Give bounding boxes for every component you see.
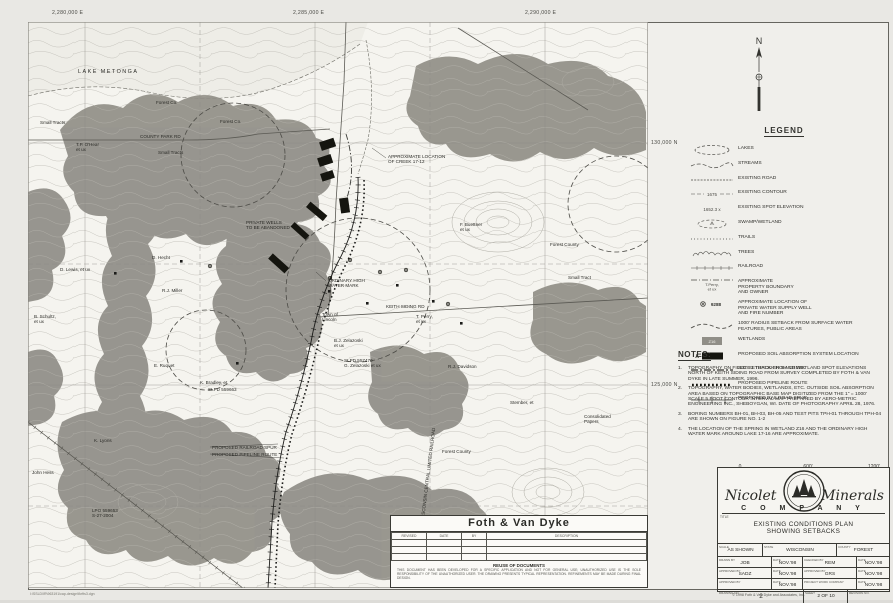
note-number: 1.: [678, 366, 688, 382]
rev-cell: [462, 540, 487, 547]
brand-name-right: Minerals: [821, 488, 884, 504]
trees-symbol: [686, 248, 738, 260]
legend-item-label: LAKES: [738, 144, 754, 151]
notes: NOTES: 1.TOPOGRAPHY ON FIELDS 1 THROUGH …: [678, 344, 884, 441]
legend-item-label: 1000' RADIUS SETBACK FROM SURFACE WATER …: [738, 319, 853, 332]
map-graphics: [28, 22, 648, 588]
legend-item: 1675EXISTING CONTOUR: [686, 188, 882, 200]
rev-cell: [427, 547, 462, 554]
company-title-block: Nicolet Minerals C O M P A N Y TITLE EXI…: [717, 467, 890, 592]
legend-item: TRAILS: [686, 233, 882, 245]
foth-van-dyke-block: Foth & Van Dyke REVISED DATE BY DESCRIPT…: [390, 515, 648, 588]
legend-item-label: EXISTING CONTOUR: [738, 188, 787, 195]
tb-label: APPROVED BY: [719, 569, 741, 573]
legend-item: SWAMP/WETLAND: [686, 218, 882, 230]
existing-contour-symbol: 1675: [686, 188, 738, 200]
rev-cell: [462, 554, 487, 561]
north-arrow-icon: N: [748, 34, 770, 114]
drawing-sheet: 2,280,000 E 2,285,000 E 2,290,000 E 130,…: [0, 0, 893, 600]
legend-item: STREAMS: [686, 159, 882, 171]
topographic-map: LAKE METONGAForest Co.Forest Co.Small Tr…: [28, 22, 648, 588]
rev-header: BY: [462, 533, 487, 540]
tb-label: COUNTY: [838, 545, 851, 549]
legend-item: RAILROAD: [686, 262, 882, 274]
legend-item-label: TRAILS: [738, 233, 755, 240]
legend-item-label: SWAMP/WETLAND: [738, 218, 782, 225]
coord-label-east-1: 2,280,000 E: [52, 10, 83, 16]
rev-cell: [487, 540, 647, 547]
note-item: 4.THE LOCATION OF THE SPRING IN WETLAND …: [678, 427, 884, 438]
copyright-line: © 1998 Foth & Van Dyke and Associates, I…: [648, 593, 889, 597]
tb-value: WISCONSIN: [765, 548, 835, 553]
railroad-symbol: [686, 262, 738, 274]
note-text: THE LOCATION OF THE SPRING IN WETLAND Z1…: [688, 427, 884, 438]
legend-item-label: TREES: [738, 248, 754, 255]
notes-title: NOTES:: [678, 350, 711, 361]
note-text: TOPOGRAPHY ON FIELDS 1 THROUGH 5 AND WET…: [688, 366, 884, 382]
lakes-symbol: [686, 144, 738, 156]
note-number: 4.: [678, 427, 688, 438]
spot-elevation-symbol: 1652.3 x: [686, 203, 738, 215]
notes-items: 1.TOPOGRAPHY ON FIELDS 1 THROUGH 5 AND W…: [678, 366, 884, 437]
property-boundary-symbol: T.Perry,et ux: [686, 277, 738, 292]
title-tag: TITLE: [720, 515, 729, 519]
legend-item-label: STREAMS: [738, 159, 762, 166]
legend-title: LEGEND: [764, 126, 803, 137]
rev-cell: [392, 547, 427, 554]
revision-table: REVISED DATE BY DESCRIPTION: [391, 532, 647, 561]
legend-item: 9288APPROXIMATE LOCATION OF PRIVATE WATE…: [686, 298, 882, 316]
reuse-of-documents: REUSE OF DOCUMENTS THIS DOCUMENT HAS BEE…: [391, 561, 647, 580]
tb-label: DATE: [858, 569, 866, 573]
tb-row-approved1: APPROVED BYSADZ DATENOV.'98 APPROVED BYG…: [718, 568, 889, 579]
rev-header: REVISED: [392, 533, 427, 540]
north-label: N: [756, 36, 763, 46]
tb-label: DATE: [773, 580, 781, 584]
trails-symbol: [686, 233, 738, 245]
reuse-text: THIS DOCUMENT HAS BEEN DEVELOPED FOR A S…: [397, 569, 641, 580]
tb-label: CHECKED BY: [804, 558, 824, 562]
company-logo-row: Nicolet Minerals C O M P A N Y: [718, 468, 889, 514]
svg-text:et ux: et ux: [708, 287, 717, 292]
rev-cell: [427, 540, 462, 547]
tb-label: DATE: [773, 558, 781, 562]
company-word: C O M P A N Y: [722, 505, 885, 514]
tb-row-scale: SCALEAS SHOWN STATEWISCONSIN COUNTYFORES…: [718, 544, 889, 557]
rev-cell: [392, 540, 427, 547]
existing-road-symbol: [686, 174, 738, 186]
rev-cell: [427, 554, 462, 561]
legend-item: 1000' RADIUS SETBACK FROM SURFACE WATER …: [686, 319, 882, 332]
legend-item-label: EXISTING ROAD: [738, 174, 776, 181]
note-item: 3.BORING NUMBERS BH-01, BH-03, BH-05 AND…: [678, 412, 884, 423]
rev-cell: [462, 547, 487, 554]
note-number: 2.: [678, 386, 688, 408]
legend-item: EXISTING ROAD: [686, 174, 882, 186]
streams-symbol: [686, 159, 738, 171]
note-item: 1.TOPOGRAPHY ON FIELDS 1 THROUGH 5 AND W…: [678, 366, 884, 382]
legend-item-label: EXISTING SPOT ELEVATION: [738, 203, 804, 210]
rev-header: DATE: [427, 533, 462, 540]
contour-texture: [28, 22, 648, 588]
tb-label: DATE: [858, 558, 866, 562]
foth-name: Foth & Van Dyke: [391, 516, 647, 532]
legend-item: TREES: [686, 248, 882, 260]
tb-label: DRAWN BY: [719, 558, 735, 562]
rev-cell: [392, 554, 427, 561]
note-item: 2.TOPOGRAPHY, WATER BODIES, WETLANDS, ET…: [678, 386, 884, 408]
tb-label: SCALE: [719, 545, 729, 549]
coord-label-east-2: 2,285,000 E: [293, 10, 324, 16]
swamp-wetland-symbol: [686, 218, 738, 230]
tb-label: DATE: [858, 580, 866, 584]
drawing-title-line1: EXISTING CONDITIONS PLAN: [718, 521, 889, 528]
svg-text:1675: 1675: [707, 192, 718, 197]
rev-cell: [487, 554, 647, 561]
well-symbol: 9288: [686, 298, 738, 310]
note-text: TOPOGRAPHY, WATER BODIES, WETLANDS, ETC.…: [688, 386, 884, 408]
legend-item-label: RAILROAD: [738, 262, 763, 269]
rev-header: DESCRIPTION: [487, 533, 647, 540]
tb-label: DATE: [773, 569, 781, 573]
legend-item: LAKES: [686, 144, 882, 156]
file-path: I:\SSLD\IR\963191\cap-design\fkrfts3.dgn: [30, 592, 95, 596]
tb-row-drawn: DRAWN BYJOB DATENOV.'98 CHECKED BYREM DA…: [718, 557, 889, 568]
rev-cell: [487, 547, 647, 554]
legend-item-label: APPROXIMATE PROPERTY BOUNDARY AND OWNER: [738, 277, 794, 295]
legend-item: T.Perry,et uxAPPROXIMATE PROPERTY BOUNDA…: [686, 277, 882, 295]
svg-text:9288: 9288: [711, 302, 722, 307]
tb-row-approved2: APPROVED BY DATENOV.'98 PROJECT WORK COM…: [718, 579, 889, 590]
tb-label: STATE: [764, 545, 773, 549]
tb-label: APPROVED BY: [804, 569, 826, 573]
coord-label-east-3: 2,290,000 E: [525, 10, 556, 16]
tb-label: APPROVED BY: [719, 580, 741, 584]
legend-item: 1652.3 xEXISTING SPOT ELEVATION: [686, 203, 882, 215]
note-text: BORING NUMBERS BH-01, BH-03, BH-05 AND T…: [688, 412, 884, 423]
svg-text:1652.3 x: 1652.3 x: [703, 207, 721, 212]
drawing-title-line2: SHOWING SETBACKS: [718, 528, 889, 535]
radius-setback-symbol: [686, 319, 738, 331]
note-number: 3.: [678, 412, 688, 423]
brand-name-left: Nicolet: [725, 488, 776, 504]
legend-item-label: APPROXIMATE LOCATION OF PRIVATE WATER SU…: [738, 298, 812, 316]
tb-label: PROJECT WORK COMPANY: [804, 580, 844, 584]
drawing-title-section: TITLE EXISTING CONDITIONS PLAN SHOWING S…: [718, 514, 889, 544]
legend-item-label: WETLANDS: [738, 335, 765, 342]
